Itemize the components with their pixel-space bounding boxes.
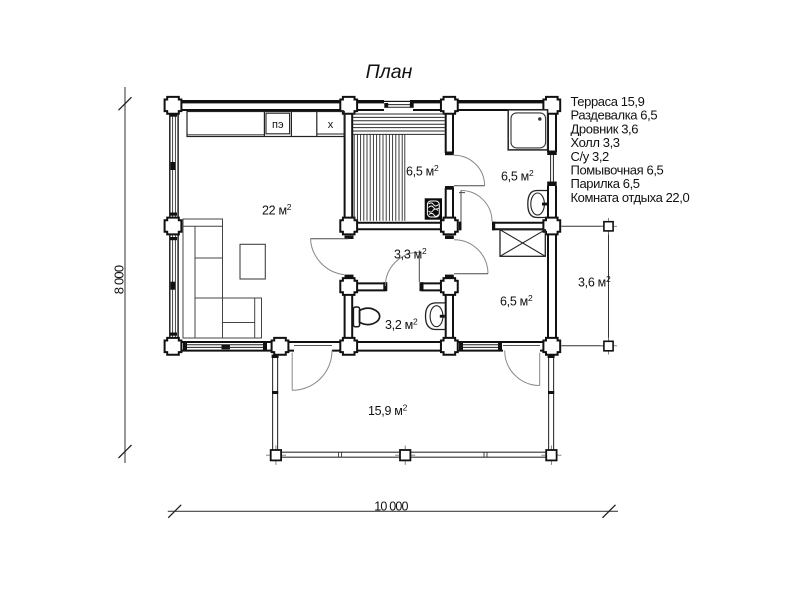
svg-text:пэ: пэ (272, 119, 284, 131)
svg-text:10 000: 10 000 (374, 499, 408, 513)
svg-text:15,9 м2: 15,9 м2 (368, 403, 408, 419)
svg-text:8 000: 8 000 (112, 265, 127, 294)
svg-text:План: План (366, 61, 413, 83)
svg-text:Комната отдыха 22,0: Комната отдыха 22,0 (571, 190, 690, 205)
svg-text:х: х (328, 119, 334, 131)
